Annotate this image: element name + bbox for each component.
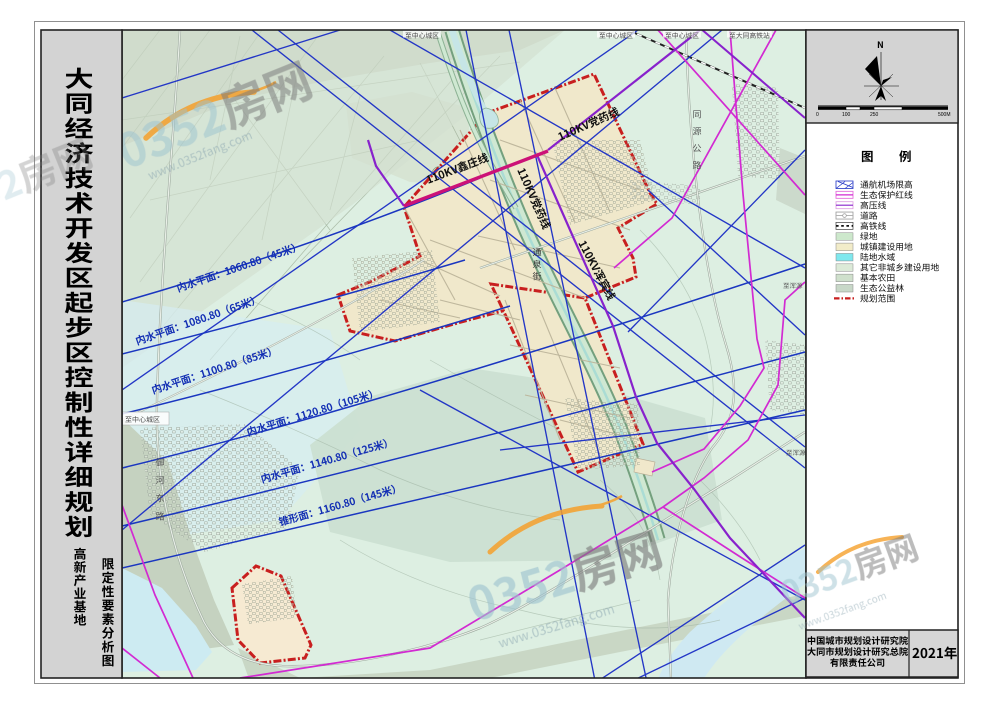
svg-text:100: 100: [842, 112, 851, 118]
svg-text:0: 0: [816, 112, 819, 118]
svg-text:250: 250: [870, 112, 879, 118]
svg-text:500M: 500M: [938, 112, 951, 118]
